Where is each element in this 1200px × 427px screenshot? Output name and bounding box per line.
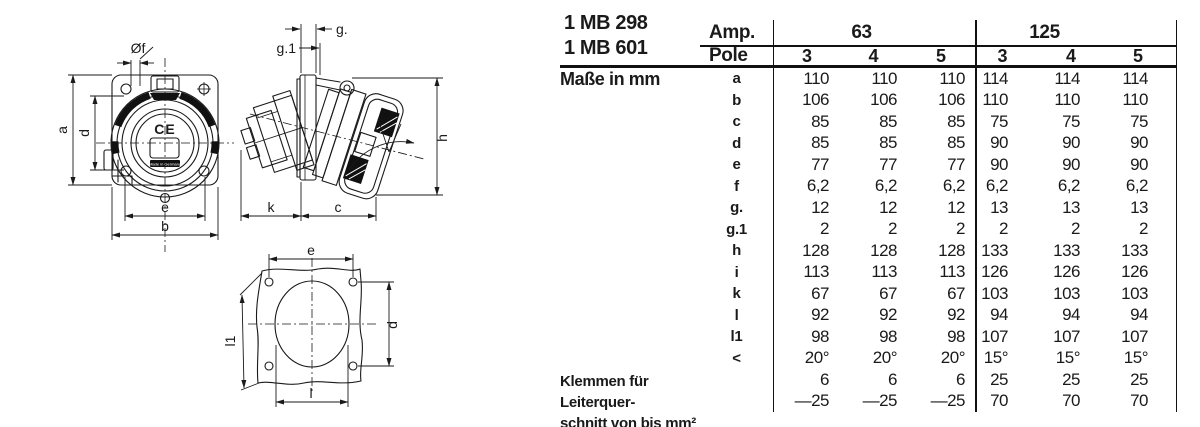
dim-label-d: d xyxy=(76,129,92,137)
dimension-value: 90 xyxy=(975,133,1042,155)
dimension-value: 2 xyxy=(1042,219,1114,241)
dimension-value: 13 xyxy=(975,197,1042,219)
table-spacer xyxy=(560,20,700,68)
dimension-value: 85 xyxy=(907,133,975,155)
dimension-value: 133 xyxy=(1114,240,1177,262)
row-key: h xyxy=(700,240,773,262)
dimension-value: 90 xyxy=(1042,154,1114,176)
dimension-value: 106 xyxy=(773,90,840,112)
dimension-value: 75 xyxy=(1114,111,1177,133)
dimension-value: 25 xyxy=(1042,369,1114,391)
row-key: l1 xyxy=(700,326,773,348)
dimension-value: 70 xyxy=(1114,391,1177,413)
pole-header: Pole xyxy=(700,47,773,68)
dimension-value: 110 xyxy=(975,90,1042,112)
dimension-value: 85 xyxy=(840,133,907,155)
dimension-value: 128 xyxy=(773,240,840,262)
dimension-value: 128 xyxy=(840,240,907,262)
dimension-value: 77 xyxy=(840,154,907,176)
dimension-value: 85 xyxy=(773,133,840,155)
dimension-value: 133 xyxy=(1042,240,1114,262)
amp-header: Amp. xyxy=(700,20,773,47)
dimension-value: 110 xyxy=(907,68,975,90)
side-view: g. g.1 h k c xyxy=(234,21,450,221)
dimension-value: 6 xyxy=(907,369,975,391)
dimension-value: 15° xyxy=(1042,348,1114,370)
row-key: l xyxy=(700,305,773,327)
pole-count-63-5: 5 xyxy=(907,47,975,68)
terminal-capacity-label-line1: Klemmen für Leiterquer- xyxy=(560,371,700,413)
dimension-value: 90 xyxy=(1042,133,1114,155)
row-key: a xyxy=(700,68,773,90)
dimension-value: 12 xyxy=(773,197,840,219)
amp-group-125: 125 xyxy=(975,20,1177,47)
dimension-value: 106 xyxy=(840,90,907,112)
pole-count-125-4: 4 xyxy=(1042,47,1114,68)
dimension-value: 133 xyxy=(975,240,1042,262)
dimension-value: 103 xyxy=(1114,283,1177,305)
dim-label-c: c xyxy=(335,199,342,215)
dimension-value: 6,2 xyxy=(975,176,1042,198)
dim-label-cutout-e: e xyxy=(307,242,315,258)
row-key: d xyxy=(700,133,773,155)
dimension-value: 20° xyxy=(907,348,975,370)
dimension-value: 85 xyxy=(907,111,975,133)
dimension-value: —25 xyxy=(773,391,840,413)
dimension-value: 114 xyxy=(1042,68,1114,90)
dimension-value: 94 xyxy=(1042,305,1114,327)
dimension-value: 15° xyxy=(1114,348,1177,370)
dimension-value: 85 xyxy=(773,111,840,133)
dimension-value: 98 xyxy=(840,326,907,348)
dimension-value: 12 xyxy=(840,197,907,219)
dimensions-unit-label: Maße in mm xyxy=(560,68,700,90)
dimension-value: 77 xyxy=(907,154,975,176)
row-key: g. xyxy=(700,197,773,219)
dimension-value: 6 xyxy=(840,369,907,391)
dimension-value: —25 xyxy=(840,391,907,413)
row-key: k xyxy=(700,283,773,305)
dimension-value: 92 xyxy=(840,305,907,327)
terminal-capacity-label-line2: schnitt von bis mm² xyxy=(560,413,696,427)
dim-label-a: a xyxy=(54,126,70,134)
dimension-value: 6,2 xyxy=(907,176,975,198)
dimension-value: 13 xyxy=(1042,197,1114,219)
dimension-value: 94 xyxy=(1114,305,1177,327)
row-key xyxy=(700,369,773,391)
pole-count-125-5: 5 xyxy=(1114,47,1177,68)
dimension-value: 126 xyxy=(975,262,1042,284)
datasheet-page: CE Made in Germany a d e b xyxy=(0,0,1200,427)
pole-count-63-3: 3 xyxy=(773,47,840,68)
row-key: c xyxy=(700,111,773,133)
made-in-germany-label: Made in Germany xyxy=(149,161,181,166)
dimension-value: 128 xyxy=(907,240,975,262)
row-key: < xyxy=(700,348,773,370)
dimension-value: 113 xyxy=(907,262,975,284)
dimension-value: 107 xyxy=(1042,326,1114,348)
ce-mark: CE xyxy=(154,121,175,137)
dim-label-h: h xyxy=(434,134,450,142)
dimension-value: 6 xyxy=(773,369,840,391)
dimension-value: 67 xyxy=(773,283,840,305)
dim-label-b: b xyxy=(161,218,169,234)
dimension-value: 2 xyxy=(840,219,907,241)
row-key: e xyxy=(700,154,773,176)
dimension-value: 6,2 xyxy=(840,176,907,198)
dimension-value: 67 xyxy=(840,283,907,305)
dimension-value: 6,2 xyxy=(1042,176,1114,198)
technical-drawings: CE Made in Germany a d e b xyxy=(0,0,560,427)
dimension-value: 113 xyxy=(840,262,907,284)
dimension-value: 90 xyxy=(1114,133,1177,155)
dimension-value: 98 xyxy=(773,326,840,348)
dimension-value: —25 xyxy=(907,391,975,413)
dimension-value: 2 xyxy=(1114,219,1177,241)
dimension-value: 103 xyxy=(1042,283,1114,305)
dim-label-k: k xyxy=(268,199,276,215)
cutout-view: e d l1 l xyxy=(222,242,400,407)
dimension-value: 25 xyxy=(975,369,1042,391)
dimension-value: 2 xyxy=(975,219,1042,241)
dimension-value: 90 xyxy=(1114,154,1177,176)
dimension-value: 114 xyxy=(1114,68,1177,90)
dim-label-diameter-f: Øf xyxy=(131,40,146,56)
dimension-value: 70 xyxy=(1042,391,1114,413)
dimension-value: 126 xyxy=(1042,262,1114,284)
dimension-value: 98 xyxy=(907,326,975,348)
terminal-capacity-label: Klemmen für Leiterquer- schnitt von bis … xyxy=(560,369,700,412)
dim-label-g1: g.1 xyxy=(277,40,297,56)
dimension-value: 13 xyxy=(1114,197,1177,219)
dim-label-g: g. xyxy=(336,21,348,37)
row-key: f xyxy=(700,176,773,198)
dimension-value: 114 xyxy=(975,68,1042,90)
dimension-value: 20° xyxy=(840,348,907,370)
dimension-table: Amp. 63 125 Pole 3 4 5 3 4 5 Maße in mm … xyxy=(560,20,1177,412)
dimension-value: 92 xyxy=(773,305,840,327)
dimension-value: 107 xyxy=(975,326,1042,348)
row-key: i xyxy=(700,262,773,284)
pole-count-63-4: 4 xyxy=(840,47,907,68)
dimension-value: 107 xyxy=(1114,326,1177,348)
dimension-value: 110 xyxy=(1114,90,1177,112)
dim-label-l: l xyxy=(309,385,312,401)
dimension-value: 77 xyxy=(773,154,840,176)
dimension-value: 15° xyxy=(975,348,1042,370)
dimension-value: 25 xyxy=(1114,369,1177,391)
dimension-value: 20° xyxy=(773,348,840,370)
dimension-value: 103 xyxy=(975,283,1042,305)
row-key xyxy=(700,391,773,413)
dimension-value: 2 xyxy=(907,219,975,241)
row-key: b xyxy=(700,90,773,112)
dimension-value: 2 xyxy=(773,219,840,241)
dimension-value: 106 xyxy=(907,90,975,112)
dimension-value: 113 xyxy=(773,262,840,284)
dimension-value: 75 xyxy=(975,111,1042,133)
dimension-value: 110 xyxy=(840,68,907,90)
dimension-value: 126 xyxy=(1114,262,1177,284)
dimension-value: 75 xyxy=(1042,111,1114,133)
dimension-value: 70 xyxy=(975,391,1042,413)
front-view: CE Made in Germany a d e b xyxy=(54,40,234,252)
dim-label-e: e xyxy=(161,199,169,215)
amp-group-63: 63 xyxy=(773,20,975,47)
row-key: g.1 xyxy=(700,219,773,241)
dimension-value: 67 xyxy=(907,283,975,305)
dimension-value: 85 xyxy=(840,111,907,133)
dimension-value: 12 xyxy=(907,197,975,219)
pole-count-125-3: 3 xyxy=(975,47,1042,68)
dimension-value: 6,2 xyxy=(773,176,840,198)
dim-label-cutout-d: d xyxy=(384,321,400,329)
dimension-value: 6,2 xyxy=(1114,176,1177,198)
dimension-value: 110 xyxy=(1042,90,1114,112)
dimension-value: 92 xyxy=(907,305,975,327)
dimension-value: 110 xyxy=(773,68,840,90)
dimension-value: 94 xyxy=(975,305,1042,327)
dim-label-l1: l1 xyxy=(222,335,238,346)
dimension-value: 90 xyxy=(975,154,1042,176)
